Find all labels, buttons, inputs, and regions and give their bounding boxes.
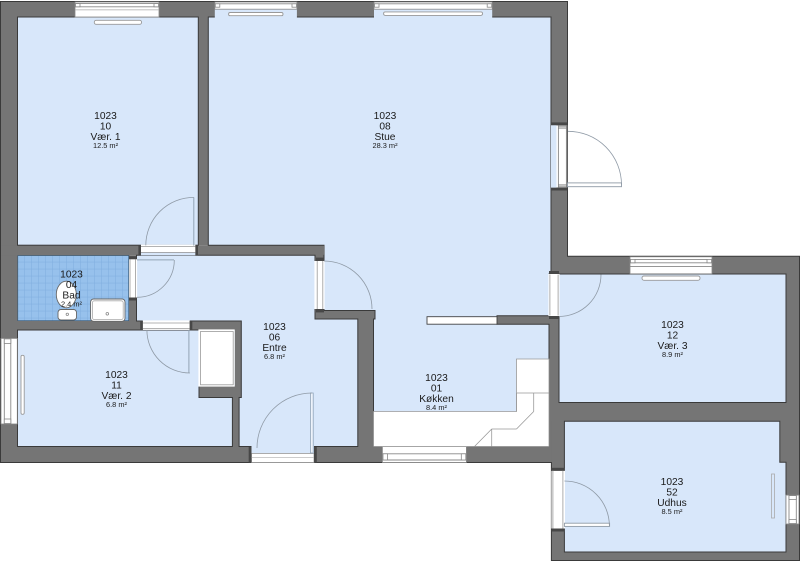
- svg-text:8.4 m²: 8.4 m²: [426, 403, 447, 412]
- svg-text:06: 06: [269, 333, 281, 344]
- svg-text:2.4 m²: 2.4 m²: [61, 299, 82, 308]
- svg-text:1023: 1023: [60, 270, 83, 281]
- svg-text:8.9 m²: 8.9 m²: [662, 350, 683, 359]
- svg-text:08: 08: [379, 122, 391, 133]
- svg-text:6.8 m²: 6.8 m²: [106, 400, 127, 409]
- svg-text:6.8 m²: 6.8 m²: [264, 352, 285, 361]
- svg-text:01: 01: [431, 384, 443, 395]
- svg-text:04: 04: [66, 280, 78, 291]
- svg-text:1023: 1023: [263, 322, 286, 333]
- svg-text:1023: 1023: [374, 111, 397, 122]
- svg-text:11: 11: [111, 381, 122, 392]
- svg-text:12.5 m²: 12.5 m²: [93, 141, 119, 150]
- svg-text:8.5 m²: 8.5 m²: [662, 507, 683, 516]
- svg-text:1023: 1023: [94, 111, 117, 122]
- svg-text:1023: 1023: [661, 320, 684, 331]
- svg-text:28.3 m²: 28.3 m²: [372, 141, 398, 150]
- svg-text:1023: 1023: [661, 477, 684, 488]
- svg-text:52: 52: [666, 488, 678, 499]
- svg-text:10: 10: [100, 122, 112, 133]
- svg-text:1023: 1023: [105, 370, 128, 381]
- svg-text:12: 12: [667, 331, 679, 342]
- svg-text:1023: 1023: [425, 373, 448, 384]
